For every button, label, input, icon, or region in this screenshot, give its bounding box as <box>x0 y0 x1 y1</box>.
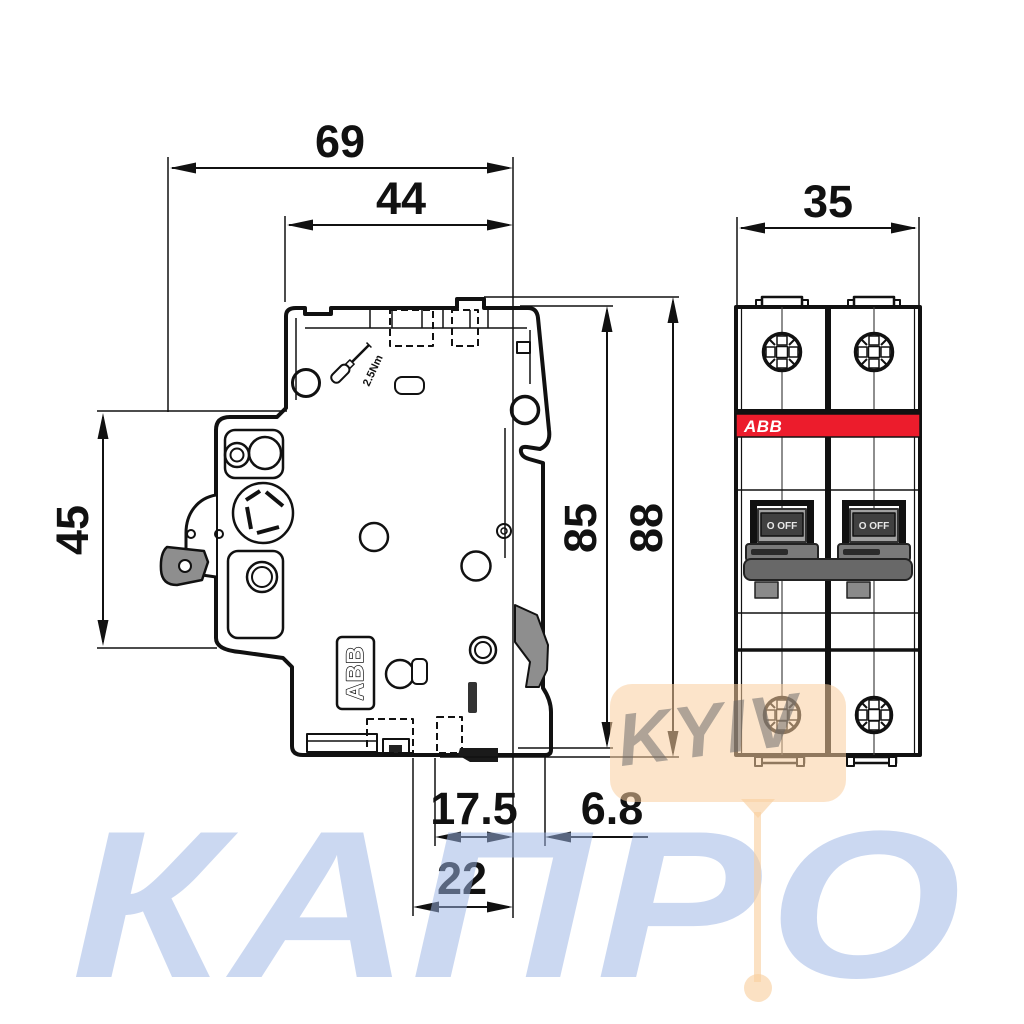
toggle-left-pole: O OFF <box>746 500 818 561</box>
svg-text:88: 88 <box>621 503 672 553</box>
dim-88: 88 <box>621 297 679 757</box>
abb-side-label: ABB <box>342 646 369 701</box>
dim-44: 44 <box>287 173 513 231</box>
dim-17-5: 17.5 <box>430 783 518 843</box>
switch-state-left: O OFF <box>767 521 798 532</box>
screw-top-left <box>764 334 801 371</box>
svg-text:45: 45 <box>47 505 98 555</box>
svg-text:85: 85 <box>555 503 606 553</box>
switch-state-right: O OFF <box>859 521 890 532</box>
svg-text:69: 69 <box>315 116 365 167</box>
bottom-clip-right <box>847 757 896 766</box>
toggle-right-pole: O OFF <box>838 500 910 561</box>
svg-text:17.5: 17.5 <box>430 783 518 834</box>
abb-front-logo: ABB <box>743 417 782 436</box>
screw-bottom-right <box>857 698 892 733</box>
screw-top-right <box>856 334 893 371</box>
front-view: ABB O OFF O OFF <box>736 297 920 766</box>
screw-bottom-left <box>765 698 800 733</box>
dim-35: 35 <box>739 176 917 234</box>
dim-69: 69 <box>170 116 513 174</box>
dim-85: 85 <box>555 306 613 748</box>
dim-6-8: 6.8 <box>545 783 648 843</box>
dim-22: 22 <box>413 853 513 913</box>
rail-hook-bottom <box>458 748 498 762</box>
technical-drawing-canvas: 2.5Nm ABB <box>0 0 1024 1024</box>
bottom-clip-left <box>755 757 804 766</box>
svg-text:6.8: 6.8 <box>581 783 644 834</box>
svg-text:22: 22 <box>437 853 487 904</box>
svg-text:35: 35 <box>803 176 853 227</box>
svg-text:44: 44 <box>376 173 426 224</box>
handle-link-bar <box>744 559 912 580</box>
dimension-drawing: 2.5Nm ABB <box>0 0 1024 1024</box>
dim-45: 45 <box>47 413 109 646</box>
side-view: 2.5Nm ABB <box>161 299 551 762</box>
